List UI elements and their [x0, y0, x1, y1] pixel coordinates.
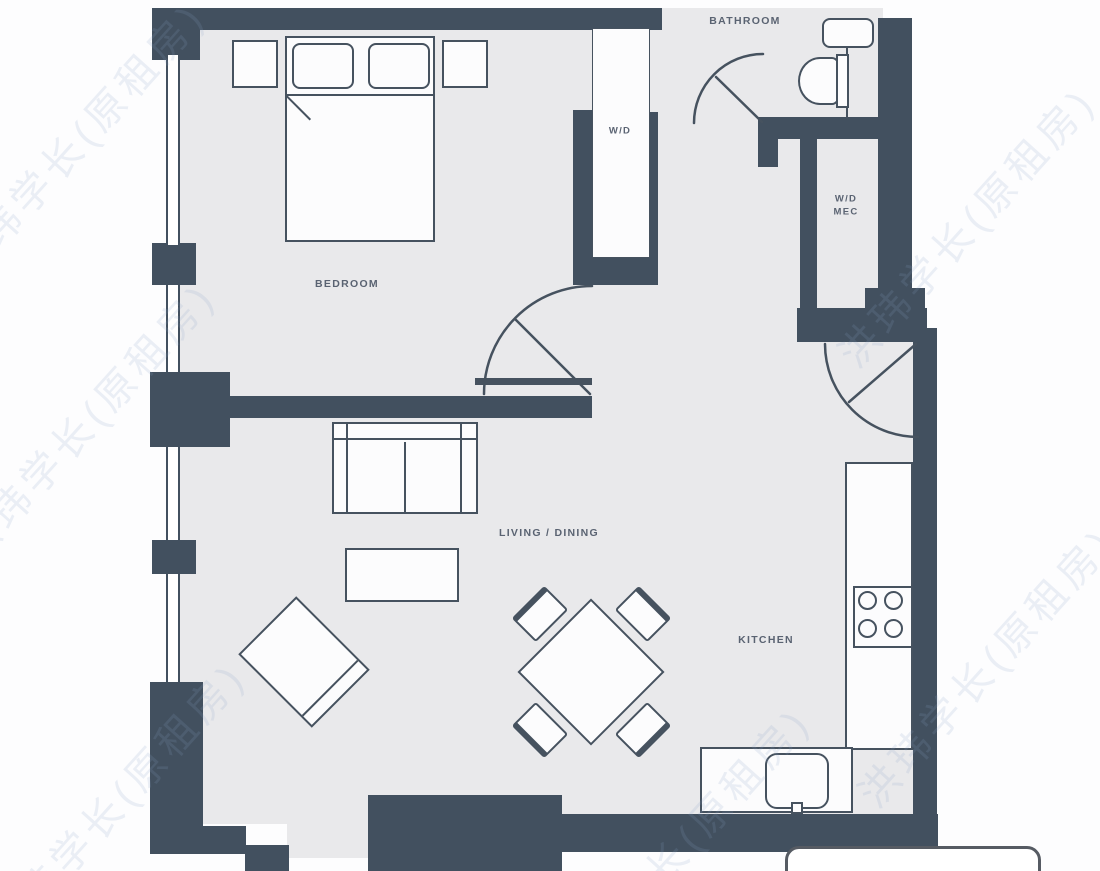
sofa-arm-left: [346, 424, 348, 512]
coffee-table: [345, 548, 459, 602]
wall-closet-bottom: [573, 255, 658, 285]
bathroom-label: BATHROOM: [709, 15, 780, 27]
wall-closet-right: [650, 112, 658, 258]
nightstand-right: [442, 40, 488, 88]
wall-bathroom-stub: [758, 139, 778, 167]
sofa-cushion-split: [404, 442, 406, 512]
mech-label-line1: W/D: [835, 194, 857, 205]
living-dining-label: LIVING / DINING: [499, 527, 599, 539]
logo-box: [785, 846, 1041, 871]
kitchen-sink: [765, 753, 829, 809]
pillow-right: [368, 43, 430, 89]
bed-blanket-line: [287, 94, 433, 96]
toilet-bowl: [798, 57, 840, 105]
wall-left-lower: [150, 682, 203, 830]
stove-burner-2: [884, 591, 903, 610]
wall-mech-bottom: [797, 308, 927, 342]
stove-burner-1: [858, 591, 877, 610]
floor-step-out: [287, 818, 370, 858]
wall-bathroom-bottom: [758, 117, 912, 139]
wall-left-pier-1: [152, 243, 196, 285]
wall-left-block: [150, 372, 230, 447]
bedroom-label: BEDROOM: [315, 278, 379, 290]
mech-label-line2: MEC: [833, 207, 858, 218]
wall-bottom-left-step: [245, 845, 289, 871]
bathroom-sink: [822, 18, 874, 48]
pocket-door: [475, 378, 592, 385]
wall-bottom-left-corner: [150, 826, 246, 854]
sink-faucet: [791, 802, 803, 814]
window-bedroom: [166, 55, 180, 245]
wall-bottom-block: [368, 795, 562, 871]
sofa-arm-right: [460, 424, 462, 512]
wd-closet-label: W/D: [609, 126, 631, 137]
wall-bedroom-living: [228, 396, 592, 418]
window-living-2: [166, 574, 180, 682]
floor-plan: BATHROOM W/D W/D MEC BEDROOM LIVING / DI…: [0, 0, 1100, 871]
wall-mech-left: [800, 128, 817, 310]
wall-mech-step: [865, 288, 925, 310]
wall-left-pier-2: [152, 540, 196, 574]
nightstand-left: [232, 40, 278, 88]
toilet-tank: [836, 54, 849, 108]
stove-burner-4: [884, 619, 903, 638]
wall-right-top: [878, 18, 912, 320]
window-living-1: [166, 447, 180, 540]
wall-top: [165, 8, 662, 30]
kitchen-label: KITCHEN: [738, 634, 794, 646]
pillow-left: [292, 43, 354, 89]
wall-right-kitchen: [913, 328, 937, 852]
closet-wd: [592, 28, 650, 258]
stove-burner-3: [858, 619, 877, 638]
wall-closet-left: [573, 110, 592, 270]
window-bedroom-2: [166, 285, 180, 372]
wall-top-left-corner: [152, 8, 200, 60]
sofa-back-line: [334, 438, 476, 440]
